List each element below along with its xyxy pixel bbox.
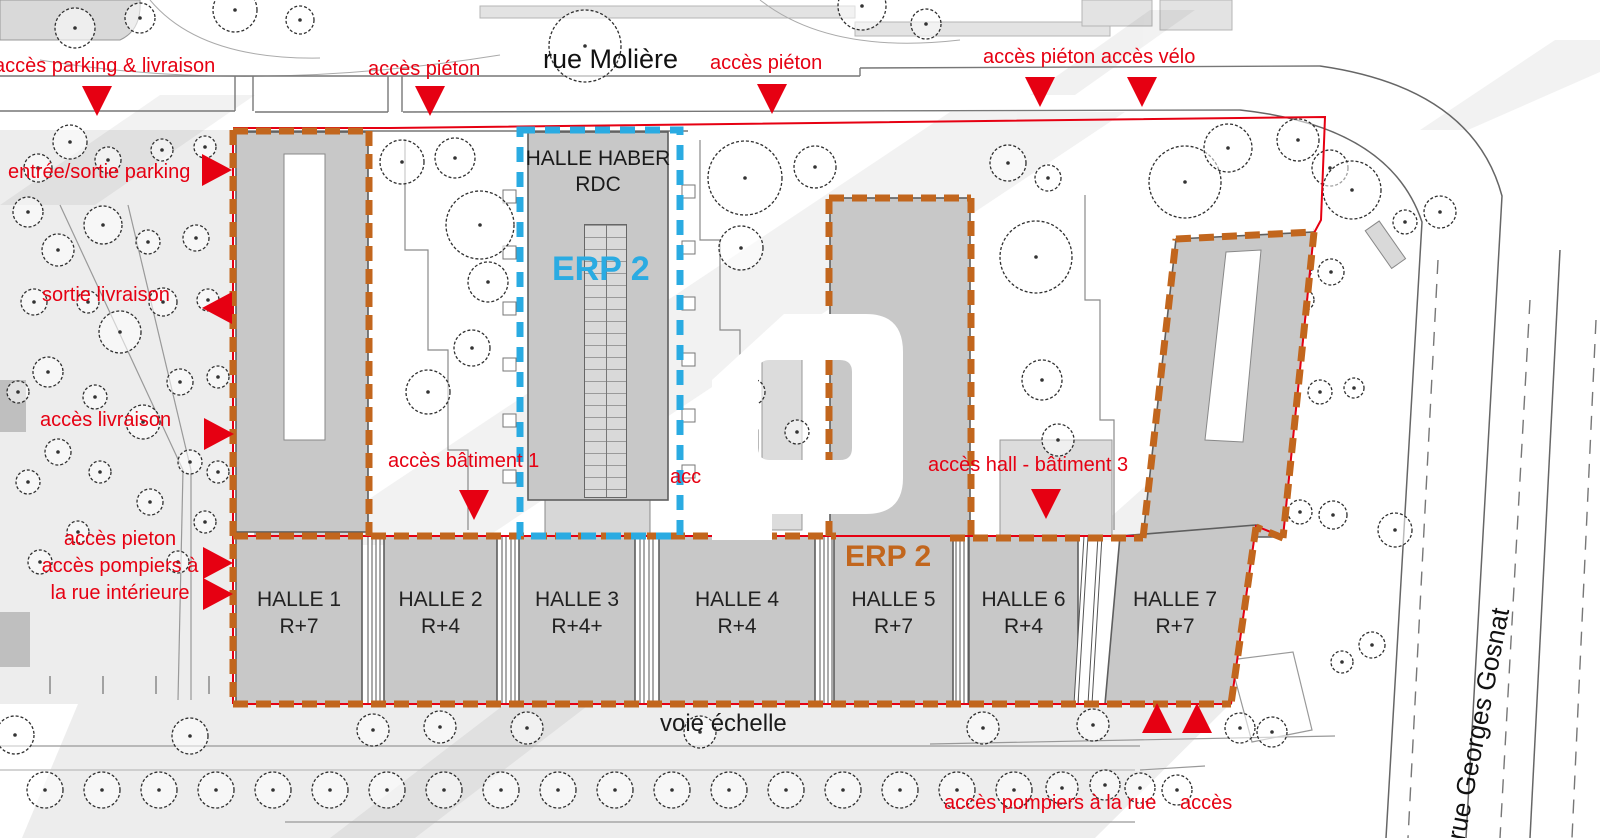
label-rue-interieure-line: la rue intérieure [20, 580, 220, 607]
site-plan: accès parking & livraison accès piéton r… [0, 0, 1600, 838]
halle-1-floors: R+7 [236, 613, 362, 640]
halle-6-name: HALLE 6 [969, 586, 1078, 613]
halle-2-floors: R+4 [384, 613, 497, 640]
label-halle-7: HALLE 7 R+7 [1105, 586, 1245, 640]
label-entree-sortie-parking: entrée/sortie parking [8, 161, 190, 184]
halle-1-name: HALLE 1 [236, 586, 362, 613]
label-acces-parking-livraison: accès parking & livraison [0, 55, 215, 78]
halle-6-floors: R+4 [969, 613, 1078, 640]
label-acces-pieton-velo: accès piéton accès vélo [983, 46, 1195, 69]
label-erp2-orange: ERP 2 [845, 540, 931, 574]
label-acces-pieton-2: accès piéton [710, 52, 822, 75]
halle-4-floors: R+4 [659, 613, 815, 640]
label-rue-georges-gosnat: rue Georges Gosnat [1441, 605, 1516, 838]
labels-layer: accès parking & livraison accès piéton r… [0, 0, 1600, 838]
label-halle-2: HALLE 2 R+4 [384, 586, 497, 640]
label-acces-bottom-right: accès [1180, 792, 1232, 815]
label-halle-haber-line2: RDC [520, 172, 676, 198]
label-halle-4: HALLE 4 R+4 [659, 586, 815, 640]
label-halle-6: HALLE 6 R+4 [969, 586, 1078, 640]
halle-7-name: HALLE 7 [1105, 586, 1245, 613]
halle-4-name: HALLE 4 [659, 586, 815, 613]
label-halle-3: HALLE 3 R+4+ [519, 586, 635, 640]
halle-7-floors: R+7 [1105, 613, 1245, 640]
halle-5-name: HALLE 5 [834, 586, 953, 613]
label-halle-5: HALLE 5 R+7 [834, 586, 953, 640]
label-acces-batiment-1: accès bâtiment 1 [388, 450, 539, 473]
label-sortie-livraison: sortie livraison [42, 284, 170, 307]
label-acces-pieton-1: accès piéton [368, 58, 480, 81]
label-acces-pieton-pompiers: accès pieton accès pompiers à la rue int… [20, 526, 220, 607]
halle-2-name: HALLE 2 [384, 586, 497, 613]
label-erp2-blue: ERP 2 [552, 250, 650, 289]
label-pieton-line: accès pieton [20, 526, 220, 553]
label-acces-livraison: accès livraison [40, 409, 171, 432]
halle-5-floors: R+7 [834, 613, 953, 640]
label-acces-pompiers-rue: accès pompiers à la rue [944, 792, 1156, 815]
label-acces-hall-batiment-3: accès hall - bâtiment 3 [928, 454, 1128, 477]
label-pompiers-line: accès pompiers à [20, 553, 220, 580]
label-halle-1: HALLE 1 R+7 [236, 586, 362, 640]
label-rue-moliere: rue Molière [543, 44, 678, 75]
label-halle-haber-line1: HALLE HABER [520, 146, 676, 172]
label-voie-echelle: voie échelle [660, 710, 787, 738]
label-acces-batiment-2-partial: acc [670, 466, 701, 489]
halle-3-name: HALLE 3 [519, 586, 635, 613]
label-halle-haber: HALLE HABER RDC [520, 146, 676, 198]
halle-3-floors: R+4+ [519, 613, 635, 640]
